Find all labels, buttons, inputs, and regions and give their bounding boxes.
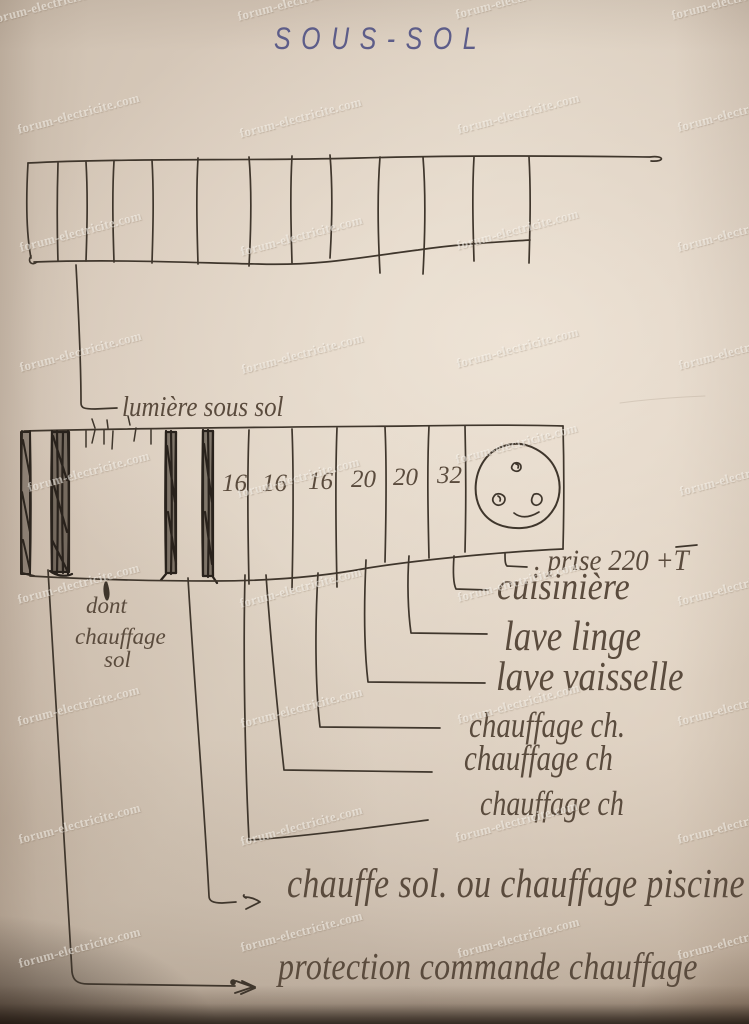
svg-text:20: 20 xyxy=(393,464,419,491)
svg-text:chauffage: chauffage xyxy=(75,624,166,649)
svg-text:lave linge: lave linge xyxy=(504,613,641,660)
svg-text:chauffage ch: chauffage ch xyxy=(464,739,613,779)
svg-text:sol: sol xyxy=(104,647,131,672)
svg-text:SOUS-SOL: SOUS-SOL xyxy=(274,20,487,55)
svg-text:chauffe sol. ou chauffage pisc: chauffe sol. ou chauffage piscine xyxy=(287,861,745,907)
svg-text:lumière sous sol: lumière sous sol xyxy=(122,391,284,423)
